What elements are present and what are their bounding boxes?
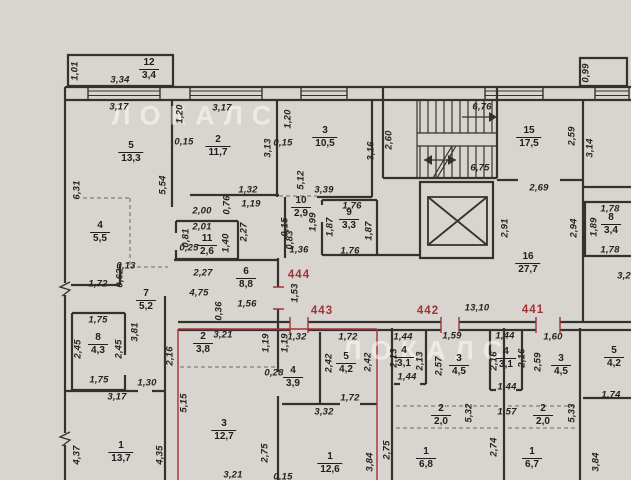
dimension-label: 4,75 xyxy=(189,288,208,299)
dimension-label: 1,44 xyxy=(497,382,516,393)
dimension-label: 1,56 xyxy=(237,299,256,310)
dimension-label: 2,27 xyxy=(193,268,212,279)
dimension-label: 0,25 xyxy=(179,243,198,254)
room-label: 310,5 xyxy=(312,125,337,149)
dimension-label: 1,32 xyxy=(287,332,306,343)
room-area: 4,5 xyxy=(449,365,469,378)
room-label: 1627,7 xyxy=(515,251,540,275)
dimension-label: 2,00 xyxy=(192,206,211,217)
room-number: 11 xyxy=(197,233,217,245)
dimension-label: 3,84 xyxy=(365,452,376,471)
dimension-label: 2,69 xyxy=(529,183,548,194)
room-area: 2,0 xyxy=(533,415,553,428)
room-label: 113,7 xyxy=(108,440,133,464)
dimension-label: 3,32 xyxy=(314,407,333,418)
room-number: 1 xyxy=(108,440,133,452)
dimension-label: 2,75 xyxy=(260,443,271,462)
dimension-label: 2,16 xyxy=(517,348,528,367)
dimension-label: 2,42 xyxy=(324,353,335,372)
dimension-label: 2,16 xyxy=(165,346,176,365)
room-number: 10 xyxy=(291,195,311,207)
apartment-number: 444 xyxy=(288,269,310,281)
room-number: 12 xyxy=(139,57,159,69)
room-area: 2,6 xyxy=(197,245,217,258)
dimension-label: 2,01 xyxy=(192,222,211,233)
dimension-label: 0,15 xyxy=(273,138,292,149)
room-area: 4,2 xyxy=(336,363,356,376)
room-area: 27,7 xyxy=(515,263,540,276)
room-label: 34,5 xyxy=(551,353,571,377)
dimension-label: 1,76 xyxy=(342,201,361,212)
dimension-label: 2,45 xyxy=(114,339,125,358)
room-area: 8,8 xyxy=(236,278,256,291)
room-number: 1 xyxy=(317,451,342,463)
dimension-label: 4,37 xyxy=(72,445,83,464)
dimension-label: 3,21 xyxy=(223,470,242,480)
room-number: 5 xyxy=(604,345,624,357)
dimension-label: 6,31 xyxy=(72,180,83,199)
dimension-label: 1,20 xyxy=(175,104,186,123)
dimension-label: 0,15 xyxy=(280,217,291,236)
dimension-label: 3,13 xyxy=(263,138,274,157)
dimension-label: 1,87 xyxy=(325,217,336,236)
room-area: 3,4 xyxy=(139,69,159,82)
room-label: 16,8 xyxy=(416,446,436,470)
floorplan-canvas: ЛОКАЛСЛОКАЛС 123,4513,3211,7310,5102,993… xyxy=(0,0,631,480)
room-label: 112,6 xyxy=(317,451,342,475)
room-label: 34,5 xyxy=(449,353,469,377)
room-number: 2 xyxy=(206,134,231,146)
dimension-label: 0,62 xyxy=(115,268,126,287)
room-label: 1517,5 xyxy=(516,125,541,149)
dimension-label: 3,17 xyxy=(107,392,126,403)
dimension-label: 2,13 xyxy=(415,351,426,370)
room-label: 45,5 xyxy=(90,220,110,244)
dimension-label: 3,16 xyxy=(366,141,377,160)
room-number: 4 xyxy=(283,365,303,377)
dimension-label: 1,44 xyxy=(393,332,412,343)
dimension-label: 3,17 xyxy=(109,102,128,113)
room-area: 12,6 xyxy=(317,463,342,476)
room-area: 4,5 xyxy=(551,365,571,378)
room-label: 211,7 xyxy=(206,134,231,158)
room-number: 3 xyxy=(312,125,337,137)
room-label: 54,2 xyxy=(336,351,356,375)
dimension-label: 0,15 xyxy=(174,137,193,148)
dimension-label: 2,27 xyxy=(239,222,250,241)
room-area: 13,3 xyxy=(118,152,143,165)
dimension-label: 3,2 xyxy=(617,271,631,282)
room-number: 2 xyxy=(533,403,553,415)
dimension-label: 1,72 xyxy=(338,332,357,343)
dimension-label: 1,74 xyxy=(601,390,620,401)
dimension-label: 1,19 xyxy=(261,333,272,352)
room-area: 2,0 xyxy=(431,415,451,428)
room-number: 15 xyxy=(516,125,541,137)
dimension-label: 5,54 xyxy=(158,175,169,194)
dimension-label: 1,57 xyxy=(497,407,516,418)
dimension-label: 2,45 xyxy=(73,339,84,358)
labels-layer: 123,4513,3211,7310,5102,993,3112,645,575… xyxy=(0,0,631,480)
room-label: 84,3 xyxy=(88,332,108,356)
dimension-label: 5,32 xyxy=(464,403,475,422)
dimension-label: 4,35 xyxy=(155,445,166,464)
dimension-label: 0,15 xyxy=(273,472,292,480)
dimension-label: 2,94 xyxy=(569,218,580,237)
dimension-label: 0,36 xyxy=(214,301,225,320)
room-label: 22,0 xyxy=(431,403,451,427)
room-label: 16,7 xyxy=(522,446,542,470)
room-area: 6,7 xyxy=(522,458,542,471)
dimension-label: 1,20 xyxy=(283,109,294,128)
room-number: 5 xyxy=(336,351,356,363)
room-area: 3,4 xyxy=(601,224,621,237)
room-area: 3,9 xyxy=(283,377,303,390)
room-label: 68,8 xyxy=(236,266,256,290)
room-number: 3 xyxy=(211,418,236,430)
dimension-label: 1,44 xyxy=(495,331,514,342)
room-area: 11,7 xyxy=(206,146,231,159)
room-number: 3 xyxy=(551,353,571,365)
dimension-label: 1,01 xyxy=(70,61,81,80)
room-number: 16 xyxy=(515,251,540,263)
dimension-label: 5,33 xyxy=(567,403,578,422)
dimension-label: 1,19 xyxy=(241,199,260,210)
dimension-label: 1,53 xyxy=(290,283,301,302)
room-number: 3 xyxy=(449,353,469,365)
room-area: 12,7 xyxy=(211,430,236,443)
dimension-label: 1,72 xyxy=(88,279,107,290)
apartment-number: 442 xyxy=(417,305,439,317)
dimension-label: 5,12 xyxy=(296,170,307,189)
dimension-label: 13,10 xyxy=(465,303,490,314)
room-number: 5 xyxy=(118,140,143,152)
dimension-label: 2,59 xyxy=(567,126,578,145)
room-number: 2 xyxy=(431,403,451,415)
room-label: 43,9 xyxy=(283,365,303,389)
dimension-label: 6,76 xyxy=(472,102,491,113)
dimension-label: 5,15 xyxy=(179,393,190,412)
dimension-label: 2,60 xyxy=(384,130,395,149)
dimension-label: 3,84 xyxy=(591,452,602,471)
dimension-label: 2,13 xyxy=(389,348,400,367)
room-number: 1 xyxy=(522,446,542,458)
dimension-label: 0,99 xyxy=(581,63,592,82)
room-number: 2 xyxy=(193,331,213,343)
room-label: 54,2 xyxy=(604,345,624,369)
room-label: 23,8 xyxy=(193,331,213,355)
dimension-label: 2,57 xyxy=(434,356,445,375)
dimension-label: 2,59 xyxy=(533,352,544,371)
room-number: 4 xyxy=(90,220,110,232)
dimension-label: 3,39 xyxy=(314,185,333,196)
room-area: 4,2 xyxy=(604,357,624,370)
dimension-label: 6,75 xyxy=(470,163,489,174)
room-area: 5,2 xyxy=(136,300,156,313)
dimension-label: 1,44 xyxy=(397,372,416,383)
dimension-label: 3,34 xyxy=(110,75,129,86)
room-number: 7 xyxy=(136,288,156,300)
dimension-label: 1,87 xyxy=(364,221,375,240)
dimension-label: 0,28 xyxy=(264,368,283,379)
room-number: 1 xyxy=(416,446,436,458)
room-area: 4,3 xyxy=(88,344,108,357)
room-number: 6 xyxy=(236,266,256,278)
dimension-label: 2,91 xyxy=(500,218,511,237)
dimension-label: 2,42 xyxy=(363,352,374,371)
apartment-number: 443 xyxy=(311,305,333,317)
dimension-label: 1,89 xyxy=(589,217,600,236)
room-label: 83,4 xyxy=(601,212,621,236)
dimension-label: 1,75 xyxy=(88,315,107,326)
dimension-label: 0,76 xyxy=(222,195,233,214)
room-area: 3,8 xyxy=(193,343,213,356)
dimension-label: 3,81 xyxy=(130,322,141,341)
room-label: 75,2 xyxy=(136,288,156,312)
dimension-label: 3,14 xyxy=(585,138,596,157)
dimension-label: 1,30 xyxy=(137,378,156,389)
dimension-label: 1,99 xyxy=(308,212,319,231)
room-area: 10,5 xyxy=(312,137,337,150)
room-label: 312,7 xyxy=(211,418,236,442)
dimension-label: 1,78 xyxy=(600,245,619,256)
dimension-label: 1,60 xyxy=(543,332,562,343)
dimension-label: 1,72 xyxy=(340,393,359,404)
room-label: 112,6 xyxy=(197,233,217,257)
room-label: 123,4 xyxy=(139,57,159,81)
dimension-label: 1,40 xyxy=(221,233,232,252)
dimension-label: 1,59 xyxy=(442,331,461,342)
dimension-label: 2,75 xyxy=(382,440,393,459)
dimension-label: 1,75 xyxy=(89,375,108,386)
room-area: 13,7 xyxy=(108,452,133,465)
dimension-label: 1,36 xyxy=(289,245,308,256)
dimension-label: 3,21 xyxy=(213,330,232,341)
dimension-label: 2,74 xyxy=(489,437,500,456)
room-label: 22,0 xyxy=(533,403,553,427)
room-area: 17,5 xyxy=(516,137,541,150)
dimension-label: 3,17 xyxy=(212,103,231,114)
room-area: 5,5 xyxy=(90,232,110,245)
room-label: 513,3 xyxy=(118,140,143,164)
room-area: 3,3 xyxy=(339,219,359,232)
dimension-label: 1,32 xyxy=(238,185,257,196)
room-number: 8 xyxy=(88,332,108,344)
dimension-label: 2,16 xyxy=(489,351,500,370)
room-area: 6,8 xyxy=(416,458,436,471)
dimension-label: 1,76 xyxy=(340,246,359,257)
apartment-number: 441 xyxy=(522,304,544,316)
dimension-label: 1,78 xyxy=(600,204,619,215)
